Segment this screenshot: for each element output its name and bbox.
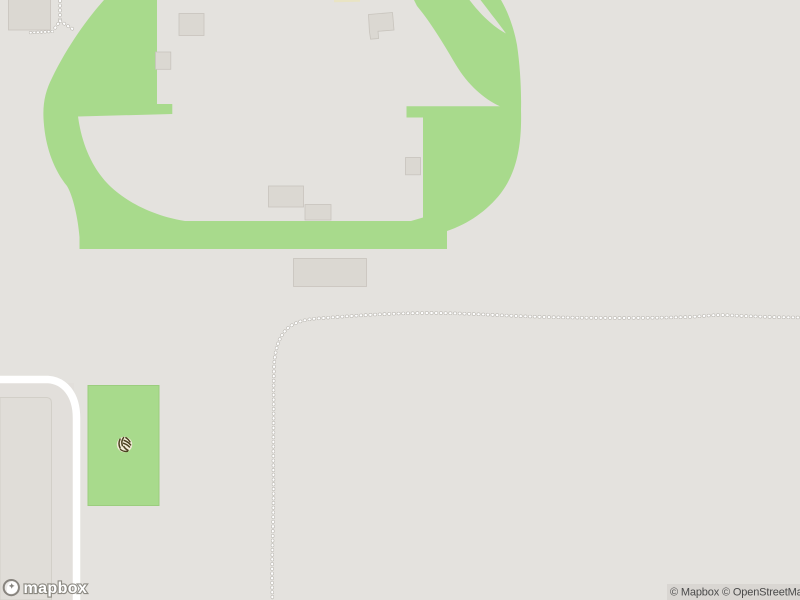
svg-text:© Mapbox © OpenStreetMap: © Mapbox © OpenStreetMap [670, 587, 800, 599]
svg-text:mapbox: mapbox [24, 580, 88, 597]
